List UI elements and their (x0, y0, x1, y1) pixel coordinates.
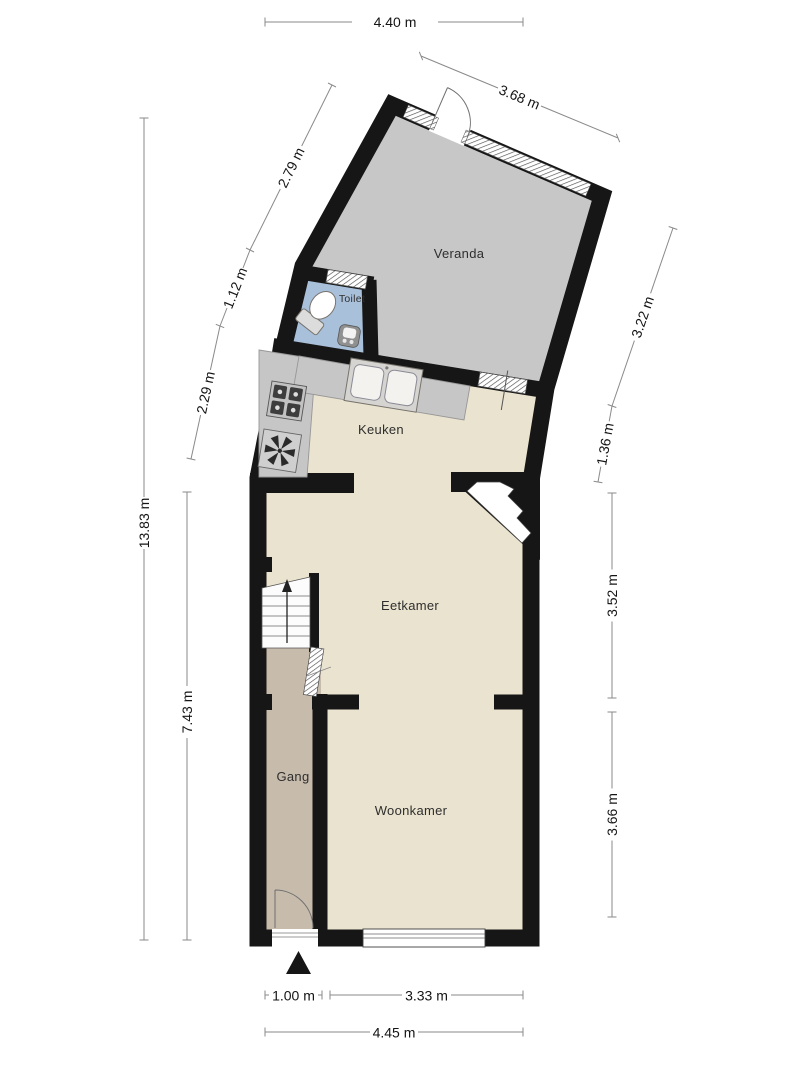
room-label-eetkamer: Eetkamer (381, 598, 439, 613)
north-arrow-icon (286, 951, 311, 974)
dim-top-width: 4.40 m (265, 14, 523, 30)
dim-woonkamer-right-height: 3.66 m (604, 712, 620, 917)
dim-woonkamer-width: 3.33 m (330, 988, 523, 1004)
svg-text:3.66 m: 3.66 m (604, 793, 620, 836)
room-label-gang: Gang (276, 769, 309, 784)
svg-text:2.29 m: 2.29 m (193, 370, 218, 415)
sink-icon (337, 324, 361, 348)
dim-toilet-left-wall: 1.12 m (216, 250, 250, 328)
svg-text:1.36 m: 1.36 m (593, 422, 616, 467)
dim-keuken-left-wall: 2.29 m (187, 326, 220, 460)
dim-total-width-bottom: 4.45 m (265, 1025, 523, 1041)
fan-icon (258, 429, 301, 472)
dim-keuken-right-wall: 1.36 m (593, 406, 616, 483)
svg-text:13.83 m: 13.83 m (136, 498, 152, 549)
svg-text:1.00 m: 1.00 m (272, 988, 315, 1004)
svg-text:4.40 m: 4.40 m (374, 14, 417, 30)
dim-veranda-right-wall: 3.22 m (608, 227, 678, 408)
wall-stub-left-upper (255, 557, 272, 572)
stove-icon (267, 381, 307, 421)
svg-text:7.43 m: 7.43 m (179, 691, 195, 734)
stairs-up-icon (262, 577, 310, 648)
floorplan-canvas: Veranda Toilet Keuken Eetkamer Gang Woon… (0, 0, 810, 1080)
svg-text:1.12 m: 1.12 m (220, 265, 251, 311)
door-opening (272, 929, 318, 947)
dim-total-height-left: 13.83 m (136, 118, 152, 940)
svg-text:3.68 m: 3.68 m (497, 81, 543, 112)
dim-lower-height-left: 7.43 m (179, 492, 195, 940)
woonkamer-window (363, 929, 485, 947)
dim-entrance-width: 1.00 m (265, 988, 322, 1004)
room-label-toilet: Toilet (339, 293, 365, 305)
floorplan-page: Veranda Toilet Keuken Eetkamer Gang Woon… (0, 0, 810, 1080)
room-label-woonkamer: Woonkamer (375, 803, 448, 818)
svg-text:3.33 m: 3.33 m (405, 988, 448, 1004)
svg-text:3.52 m: 3.52 m (604, 574, 620, 617)
room-label-keuken: Keuken (358, 422, 404, 437)
svg-text:2.79 m: 2.79 m (274, 145, 307, 190)
room-label-veranda: Veranda (434, 246, 485, 261)
wall-stub-left-lower (255, 694, 272, 710)
dim-eetkamer-right-height: 3.52 m (604, 493, 620, 698)
svg-text:4.45 m: 4.45 m (373, 1025, 416, 1041)
svg-text:3.22 m: 3.22 m (628, 294, 657, 340)
